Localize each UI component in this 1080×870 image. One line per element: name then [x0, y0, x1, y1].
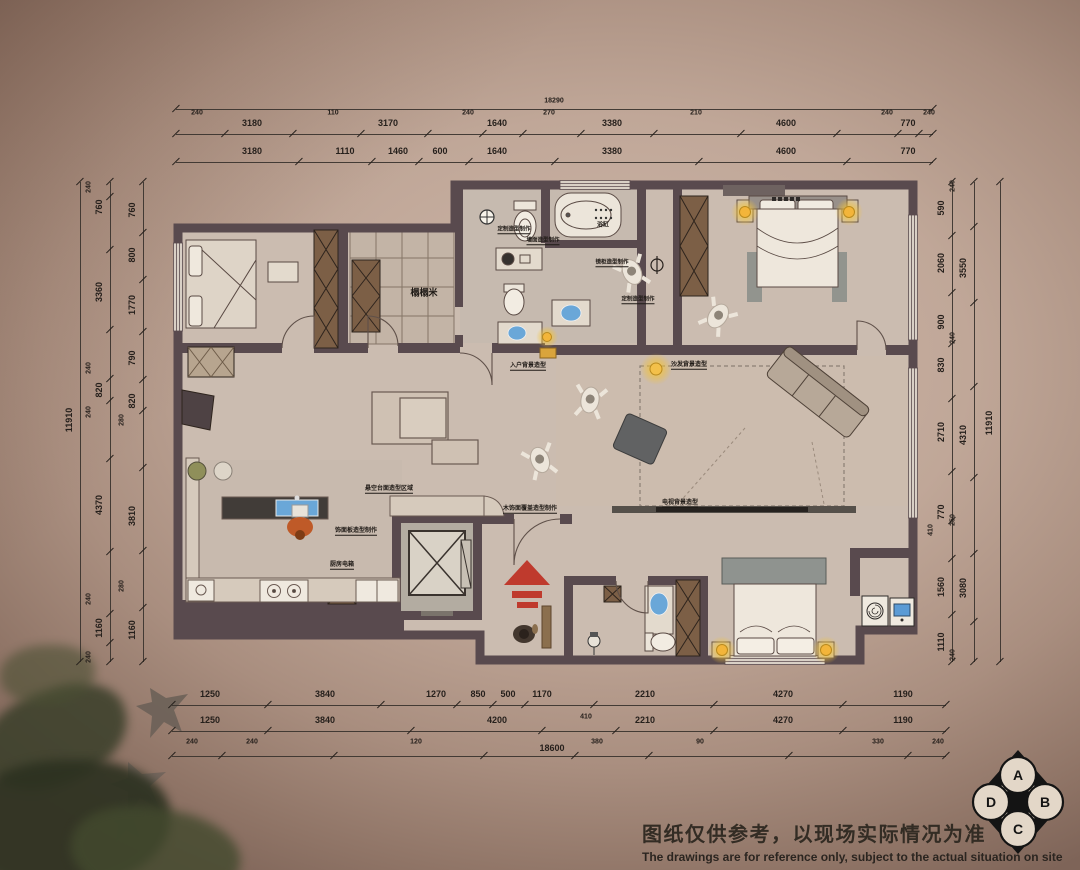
plan-annotation: 沙发背景造型	[671, 359, 707, 370]
dim-label: 90	[696, 739, 704, 746]
dim-line-bottom-row-2	[172, 731, 946, 732]
dim-label: 210	[690, 110, 702, 117]
dim-label: 3380	[602, 146, 622, 156]
dim-label: 4270	[773, 689, 793, 699]
dim-label: 410	[580, 714, 592, 721]
plan-annotation: 浴缸	[597, 220, 609, 229]
dim-label: 770	[900, 118, 915, 128]
dim-label: 330	[872, 739, 884, 746]
plan-annotation: 饰面板造型制作	[335, 525, 377, 536]
dim-label: 240	[86, 406, 93, 418]
dim-label: 240	[186, 739, 198, 746]
compass-label-b: B	[1040, 794, 1050, 810]
dim-label: 3080	[958, 578, 968, 598]
dim-label: 4600	[776, 146, 796, 156]
dim-label: 1250	[200, 715, 220, 725]
dim-label: 3380	[602, 118, 622, 128]
dim-line-right-col-1	[952, 182, 953, 662]
dim-label: 1190	[893, 715, 913, 725]
dim-label: 240	[86, 593, 93, 605]
plan-annotation: 定制造型制作	[497, 224, 530, 234]
dim-label: 1190	[893, 689, 913, 699]
dim-tick	[76, 658, 84, 666]
dim-label: 1640	[487, 118, 507, 128]
dim-label: 500	[500, 689, 515, 699]
dim-label: 240	[950, 649, 957, 661]
dim-label: 820	[127, 393, 137, 408]
dim-label: 240	[86, 362, 93, 374]
dim-label: 1460	[388, 146, 408, 156]
dim-label: 830	[936, 357, 946, 372]
dim-line-bottom-row-1	[172, 705, 946, 706]
dim-label: 2060	[936, 253, 946, 273]
dim-label: 11910	[984, 411, 994, 436]
plan-annotation: 厨房电箱	[330, 559, 354, 570]
dim-tick	[139, 658, 147, 666]
dim-label: 850	[470, 689, 485, 699]
dim-label: 600	[432, 146, 447, 156]
dim-label: 240	[923, 110, 935, 117]
dim-line-left-overall	[80, 182, 81, 662]
dim-label: 1770	[127, 295, 137, 315]
floorplan-canvas: 1829024031801103170240164027033802104600…	[0, 0, 1080, 870]
dim-label: 790	[127, 350, 137, 365]
dim-label: 11910	[64, 408, 74, 433]
dim-label: 2210	[635, 715, 655, 725]
dim-tick	[996, 658, 1004, 666]
dim-label: 240	[950, 180, 957, 192]
plan-annotation: 镜柜造型制作	[595, 257, 628, 267]
dim-label: 1110	[936, 632, 946, 651]
dim-label: 380	[591, 739, 603, 746]
dim-label: 1640	[487, 146, 507, 156]
dim-label: 4600	[776, 118, 796, 128]
plan-annotation: 悬空台面造型区域	[365, 483, 413, 494]
dim-tick	[942, 752, 950, 760]
dim-label: 250	[950, 514, 957, 526]
dim-label: 820	[94, 382, 104, 397]
dim-label: 4370	[94, 495, 104, 515]
dim-label: 4270	[773, 715, 793, 725]
plan-annotation: 墙面造型制作	[526, 235, 559, 245]
dim-label: 18600	[539, 743, 564, 753]
dim-line-right-col-2	[974, 182, 975, 662]
dim-label: 240	[191, 110, 203, 117]
dim-label: 1170	[532, 689, 552, 699]
dim-tick	[970, 658, 978, 666]
dim-label: 270	[543, 110, 555, 117]
watermark: 图纸仅供参考，以现场实际情况为准 The drawings are for re…	[642, 818, 1063, 864]
dim-label: 800	[127, 247, 137, 262]
dim-label: 280	[119, 580, 126, 592]
dim-label: 3810	[127, 506, 137, 526]
dim-label: 760	[127, 202, 137, 217]
dim-label: 770	[900, 146, 915, 156]
watermark-chinese: 图纸仅供参考，以现场实际情况为准	[642, 818, 1063, 847]
plan-annotation: 榻榻米	[410, 286, 437, 299]
dim-label: 1270	[426, 689, 446, 699]
dim-tick	[929, 158, 937, 166]
dim-label: 590	[936, 200, 946, 215]
dim-label: 240	[881, 110, 893, 117]
dim-label: 240	[246, 739, 258, 746]
dim-label: 1160	[94, 618, 104, 638]
dim-label: 3550	[958, 258, 968, 278]
dim-label: 760	[94, 199, 104, 214]
dim-label: 4310	[958, 425, 968, 445]
dim-label: 3170	[378, 118, 398, 128]
dimension-and-annotation-layer: 1829024031801103170240164027033802104600…	[0, 0, 1080, 870]
plan-annotation: 电视背景造型	[662, 497, 698, 508]
plan-annotation: 木饰面覆盖造型制作	[503, 503, 557, 514]
compass-label-a: A	[1013, 767, 1023, 783]
compass-label-d: D	[986, 794, 996, 810]
dim-label: 2210	[635, 689, 655, 699]
dim-label: 2710	[936, 422, 946, 442]
dim-label: 240	[932, 739, 944, 746]
dim-line-bottom-row-3	[172, 756, 946, 757]
dim-label: 3180	[242, 146, 262, 156]
dim-line-left-col-2	[143, 182, 144, 662]
dim-tick	[942, 701, 950, 709]
dim-label: 1250	[200, 689, 220, 699]
dim-tick	[942, 727, 950, 735]
dim-label: 3840	[315, 715, 335, 725]
dim-label: 110	[327, 110, 338, 117]
dim-label: 1110	[335, 146, 354, 156]
dim-line-left-col-1	[110, 182, 111, 662]
dim-label: 4200	[487, 715, 507, 725]
dim-label: 3180	[242, 118, 262, 128]
dim-label: 18290	[544, 98, 563, 105]
watermark-english: The drawings are for reference only, sub…	[642, 850, 1063, 864]
dim-label: 240	[86, 651, 93, 663]
dim-label: 1160	[127, 620, 137, 640]
dim-label: 240	[950, 332, 957, 344]
dim-label: 900	[936, 314, 946, 329]
dim-tick	[929, 130, 937, 138]
dim-label: 3840	[315, 689, 335, 699]
dim-label: 770	[936, 504, 946, 519]
plan-annotation: 入户背景造型	[510, 360, 546, 371]
dim-label: 410	[928, 524, 935, 536]
plan-annotation: 定制造型制作	[621, 294, 654, 304]
dim-label: 280	[119, 414, 126, 426]
dim-label: 120	[410, 739, 422, 746]
dim-label: 240	[86, 181, 93, 193]
dim-label: 1560	[936, 577, 946, 597]
dim-line-right-overall	[1000, 182, 1001, 662]
dim-label: 240	[462, 110, 474, 117]
dim-tick	[106, 658, 114, 666]
dim-label: 3360	[94, 282, 104, 302]
